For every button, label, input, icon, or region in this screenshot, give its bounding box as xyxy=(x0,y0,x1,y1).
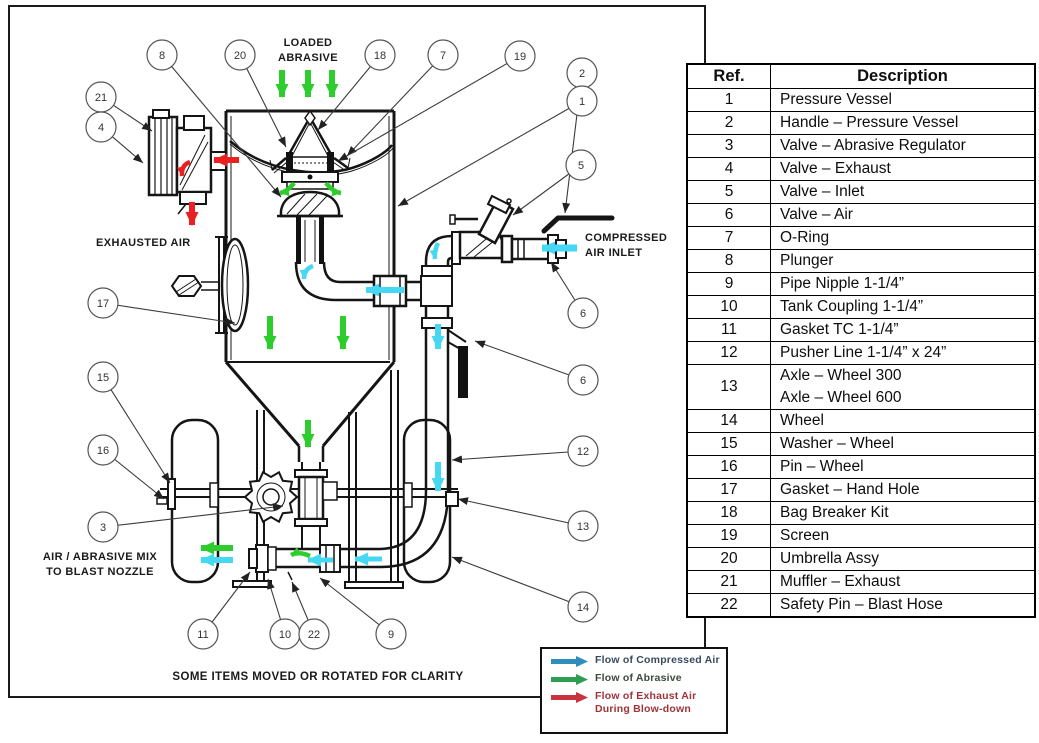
table-row: 16Pin – Wheel xyxy=(687,456,1035,479)
callout-number: 20 xyxy=(234,50,246,62)
legend-label: Flow of Abrasive xyxy=(595,672,682,685)
blast-pot-diagram: 820187192121456617151631213141110229 xyxy=(0,0,740,743)
description-cell: Pressure Vessel xyxy=(771,89,1036,112)
ref-cell: 13 xyxy=(687,365,771,410)
description-cell: Gasket TC 1-1/4” xyxy=(771,319,1036,342)
valve-air-handle xyxy=(458,346,468,398)
table-row: 11Gasket TC 1-1/4” xyxy=(687,319,1035,342)
legend-entry-compressed-air: Flow of Compressed Air xyxy=(549,654,726,668)
callout-leader xyxy=(475,341,583,380)
description-cell: Pusher Line 1-1/4” x 24” xyxy=(771,342,1036,365)
table-row: 2Handle – Pressure Vessel xyxy=(687,112,1035,135)
pipe-tee xyxy=(421,276,452,306)
ref-cell: 16 xyxy=(687,456,771,479)
valve-abrasive-regulator xyxy=(299,477,323,519)
description-cell: Safety Pin – Blast Hose xyxy=(771,594,1036,618)
gasket-tc xyxy=(268,547,276,570)
gasket-hand-hole xyxy=(222,239,248,331)
valve-exhaust xyxy=(177,128,211,192)
table-row: 8Plunger xyxy=(687,250,1035,273)
ref-cell: 10 xyxy=(687,296,771,319)
callout-number: 5 xyxy=(578,160,584,172)
table-row: 20Umbrella Assy xyxy=(687,548,1035,571)
callout-number: 12 xyxy=(577,446,589,458)
ref-cell: 18 xyxy=(687,502,771,525)
table-row: 12Pusher Line 1-1/4” x 24” xyxy=(687,342,1035,365)
description-cell: Pipe Nipple 1-1/4” xyxy=(771,273,1036,296)
table-header-ref: Ref. xyxy=(687,64,771,89)
muffler-exhaust xyxy=(149,117,177,195)
abrasive-arrow-icon xyxy=(549,673,589,686)
table-row: 13Axle – Wheel 300Axle – Wheel 600 xyxy=(687,365,1035,410)
description-cell: Valve – Exhaust xyxy=(771,158,1036,181)
callout-number: 10 xyxy=(279,629,291,641)
description-cell: Valve – Inlet xyxy=(771,181,1036,204)
flow-legend: Flow of Compressed AirFlow of AbrasiveFl… xyxy=(540,647,728,734)
table-row: 4Valve – Exhaust xyxy=(687,158,1035,181)
callout-number: 21 xyxy=(95,92,107,104)
description-cell: Axle – Wheel 300Axle – Wheel 600 xyxy=(771,365,1036,410)
table-row: 14Wheel xyxy=(687,410,1035,433)
table-row: 15Washer – Wheel xyxy=(687,433,1035,456)
callout-number: 4 xyxy=(98,122,104,134)
label-loaded-abrasive: LOADED ABRASIVE xyxy=(258,36,358,66)
label-compressed-air-inlet: COMPRESSED AIR INLET xyxy=(585,231,667,261)
parts-table: Ref. Description 1Pressure Vessel2Handle… xyxy=(686,63,1036,618)
callout-leader xyxy=(458,499,583,526)
label-exhausted-air: EXHAUSTED AIR xyxy=(96,236,191,251)
description-cell: Screen xyxy=(771,525,1036,548)
ref-cell: 14 xyxy=(687,410,771,433)
callout-leader xyxy=(103,303,235,323)
label-blast-nozzle: AIR / ABRASIVE MIX TO BLAST NOZZLE xyxy=(24,550,176,580)
table-row: 5Valve – Inlet xyxy=(687,181,1035,204)
callout-number: 15 xyxy=(97,372,109,384)
description-cell: Muffler – Exhaust xyxy=(771,571,1036,594)
callout-leader xyxy=(103,377,170,483)
callout-number: 19 xyxy=(514,51,526,63)
callout-leader xyxy=(398,101,582,206)
vessel-artwork xyxy=(149,110,612,588)
callout-number: 22 xyxy=(308,629,320,641)
foot-center xyxy=(345,582,403,588)
label-clarity-note: SOME ITEMS MOVED OR ROTATED FOR CLARITY xyxy=(128,670,508,685)
table-row: 21Muffler – Exhaust xyxy=(687,571,1035,594)
description-cell: Plunger xyxy=(771,250,1036,273)
table-row: 1Pressure Vessel xyxy=(687,89,1035,112)
ref-cell: 3 xyxy=(687,135,771,158)
ref-cell: 1 xyxy=(687,89,771,112)
callout-leader xyxy=(452,557,583,607)
ref-cell: 15 xyxy=(687,433,771,456)
o-ring xyxy=(308,175,313,180)
description-cell: Umbrella Assy xyxy=(771,548,1036,571)
description-cell: Tank Coupling 1-1/4” xyxy=(771,296,1036,319)
description-cell: Wheel xyxy=(771,410,1036,433)
callout-number: 1 xyxy=(579,96,585,108)
ref-cell: 11 xyxy=(687,319,771,342)
table-row: 6Valve – Air xyxy=(687,204,1035,227)
table-row: 22Safety Pin – Blast Hose xyxy=(687,594,1035,618)
table-row: 18Bag Breaker Kit xyxy=(687,502,1035,525)
safety-pin-blast-hose xyxy=(288,572,292,580)
ref-cell: 19 xyxy=(687,525,771,548)
washer-wheel xyxy=(168,479,175,509)
axle-end xyxy=(446,492,458,506)
table-row: 19Screen xyxy=(687,525,1035,548)
table-row: 17Gasket – Hand Hole xyxy=(687,479,1035,502)
table-row: 3Valve – Abrasive Regulator xyxy=(687,135,1035,158)
callout-number: 7 xyxy=(440,50,446,62)
description-cell: Washer – Wheel xyxy=(771,433,1036,456)
parts-table-body: 1Pressure Vessel2Handle – Pressure Vesse… xyxy=(687,89,1035,618)
callout-number: 13 xyxy=(577,521,589,533)
description-cell: Gasket – Hand Hole xyxy=(771,479,1036,502)
description-cell: O-Ring xyxy=(771,227,1036,250)
table-row: 9Pipe Nipple 1-1/4” xyxy=(687,273,1035,296)
callout-number: 17 xyxy=(97,298,109,310)
description-cell: Handle – Pressure Vessel xyxy=(771,112,1036,135)
callout-leader xyxy=(338,56,520,161)
callout-number: 14 xyxy=(577,602,589,614)
ref-cell: 22 xyxy=(687,594,771,618)
callout-leader xyxy=(452,451,583,460)
callout-number: 16 xyxy=(97,445,109,457)
ref-cell: 4 xyxy=(687,158,771,181)
callout-number: 8 xyxy=(159,50,165,62)
callout-number: 6 xyxy=(580,375,586,387)
table-header-description: Description xyxy=(771,64,1036,89)
umbrella-assy xyxy=(281,192,339,216)
ref-cell: 20 xyxy=(687,548,771,571)
ref-cell: 2 xyxy=(687,112,771,135)
plunger xyxy=(296,216,301,264)
pin-wheel xyxy=(157,498,167,504)
callout-number: 9 xyxy=(388,629,394,641)
description-cell: Valve – Abrasive Regulator xyxy=(771,135,1036,158)
ref-cell: 12 xyxy=(687,342,771,365)
legend-entry-exhaust: Flow of Exhaust AirDuring Blow-down xyxy=(549,690,726,715)
exhaust-arrow-icon xyxy=(549,691,589,704)
legend-label: Flow of Compressed Air xyxy=(595,654,720,667)
ref-cell: 8 xyxy=(687,250,771,273)
table-row: 10Tank Coupling 1-1/4” xyxy=(687,296,1035,319)
description-cell: Bag Breaker Kit xyxy=(771,502,1036,525)
legend-entry-abrasive: Flow of Abrasive xyxy=(549,672,726,686)
ref-cell: 17 xyxy=(687,479,771,502)
handle-pressure-vessel xyxy=(544,218,612,231)
hand-hole-bolt xyxy=(172,276,201,296)
ref-cell: 21 xyxy=(687,571,771,594)
compressed-air-arrow-icon xyxy=(549,655,589,668)
page: 820187192121456617151631213141110229 LOA… xyxy=(0,0,1039,743)
ref-cell: 6 xyxy=(687,204,771,227)
ref-cell: 9 xyxy=(687,273,771,296)
callout-number: 18 xyxy=(374,50,386,62)
description-cell: Pin – Wheel xyxy=(771,456,1036,479)
legend-label: Flow of Exhaust AirDuring Blow-down xyxy=(595,690,696,715)
ref-cell: 5 xyxy=(687,181,771,204)
callout-number: 3 xyxy=(100,522,106,534)
callout-number: 6 xyxy=(580,308,586,320)
description-cell: Valve – Air xyxy=(771,204,1036,227)
ref-cell: 7 xyxy=(687,227,771,250)
callout-number: 11 xyxy=(197,629,208,641)
callout-number: 2 xyxy=(579,68,585,80)
table-row: 7O-Ring xyxy=(687,227,1035,250)
pressure-vessel-shell xyxy=(226,111,394,362)
